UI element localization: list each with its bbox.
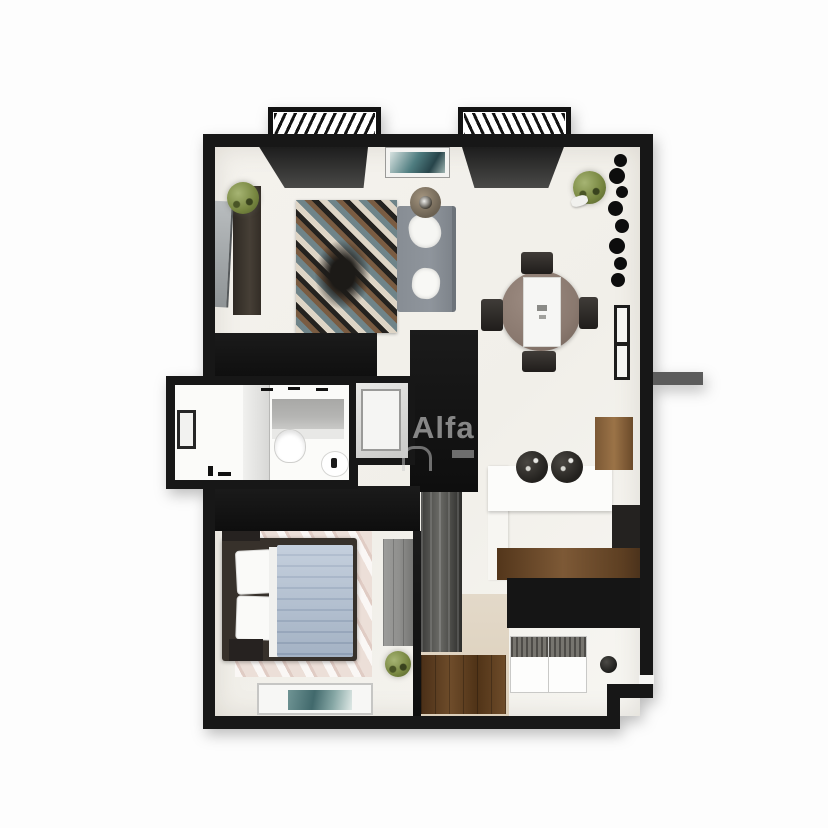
watermark-text: Alfa [412, 410, 475, 446]
table-runner [523, 277, 561, 347]
exterior-wall-left-upper [203, 134, 215, 380]
closet-band-lower [215, 486, 420, 531]
bedroom-wardrobe [383, 539, 413, 646]
centerpiece-icon [537, 305, 547, 311]
shower-cabin [361, 389, 401, 451]
watermark-logo-bar [452, 450, 474, 458]
exterior-wall-bottom [203, 716, 620, 729]
watermark: Alfa [398, 408, 498, 470]
bathroom-partition [243, 385, 270, 480]
sofa-pillow [410, 267, 441, 301]
mat-artwork [288, 690, 352, 710]
entry-opening [639, 675, 654, 684]
sink-unit [510, 636, 549, 693]
faucet-mark-icon [316, 388, 328, 391]
floorplan-image: Alfa [0, 0, 828, 828]
interior-door [614, 305, 630, 380]
exterior-wall-left-lower [203, 486, 215, 729]
dining-chair-top [521, 252, 553, 274]
sink-faucet-icon [331, 458, 337, 468]
toilet-icon [274, 429, 306, 463]
window-panel-right [462, 147, 566, 188]
bedroom-partition-wall [413, 531, 421, 716]
bed-duvet [277, 545, 353, 657]
faucet-mark-icon [288, 387, 300, 390]
exterior-wall-step-v [607, 698, 620, 718]
closet-band-upper [215, 333, 377, 380]
watermark-logo-icon [402, 446, 432, 471]
plant-living-icon [227, 182, 259, 214]
sink-icon [321, 451, 349, 477]
nightstand-bottom [229, 639, 263, 661]
bar-stool-1 [516, 451, 548, 483]
plant-bedroom-icon [385, 651, 411, 677]
kitchen-counter-wood [497, 548, 644, 580]
wall-art [386, 148, 449, 177]
hallway-mirror-closet [421, 492, 462, 652]
centerpiece-icon [539, 315, 546, 319]
living-area-rug [296, 200, 397, 333]
exterior-wall-step-h [607, 684, 653, 698]
bed-pillow-2 [235, 595, 274, 640]
dining-chair-right [579, 297, 598, 329]
apartment-floorplan: Alfa [0, 0, 828, 828]
entry-base-cabinets [421, 655, 506, 714]
dining-chair-bottom [522, 351, 556, 372]
exterior-wall-right [640, 134, 653, 690]
floor-hardware-icon [208, 466, 213, 476]
vanity-mirror [272, 399, 344, 429]
bathroom [166, 376, 358, 489]
breakfast-bar [488, 466, 612, 511]
sofa [397, 206, 456, 312]
stove-unit [548, 636, 587, 693]
door-divider [617, 342, 627, 346]
round-side-table [410, 187, 441, 218]
burners-icon [549, 637, 586, 657]
bar-stool-2 [551, 451, 583, 483]
sink-basin-icon [511, 637, 548, 657]
wall-decor-branches-icon [606, 154, 632, 294]
floor-mat [257, 683, 373, 715]
kitchen-counter-base [507, 578, 641, 628]
dining-chair-left [481, 299, 503, 331]
tray-icon [419, 196, 432, 209]
exterior-wall-top [203, 134, 653, 147]
faucet-mark-icon [261, 388, 273, 391]
knob-icon [600, 656, 617, 673]
wall-cabinet [595, 417, 633, 470]
bathroom-door-niche [177, 410, 196, 449]
floor-hardware-icon [218, 472, 231, 476]
